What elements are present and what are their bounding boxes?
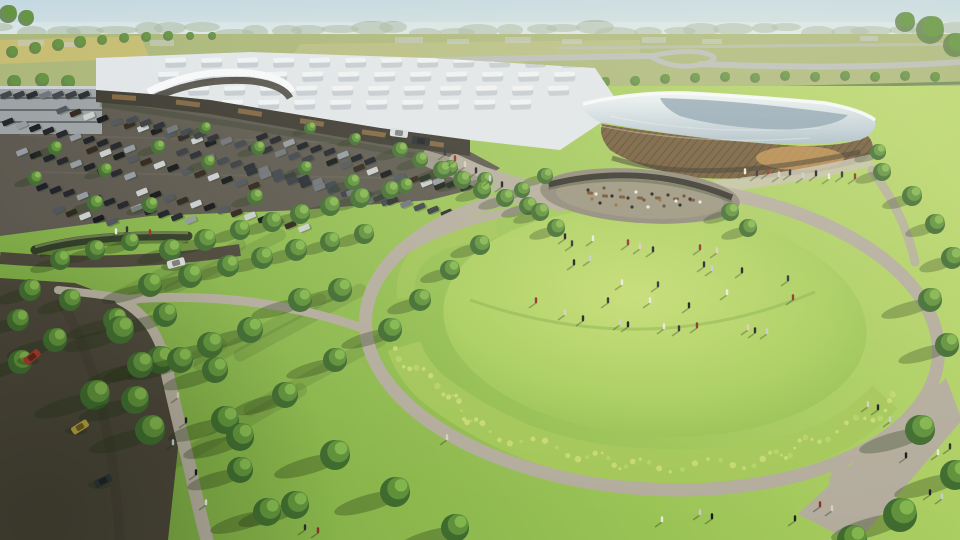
rendered-scene	[0, 0, 960, 540]
campus-aerial-rendering	[0, 0, 960, 540]
